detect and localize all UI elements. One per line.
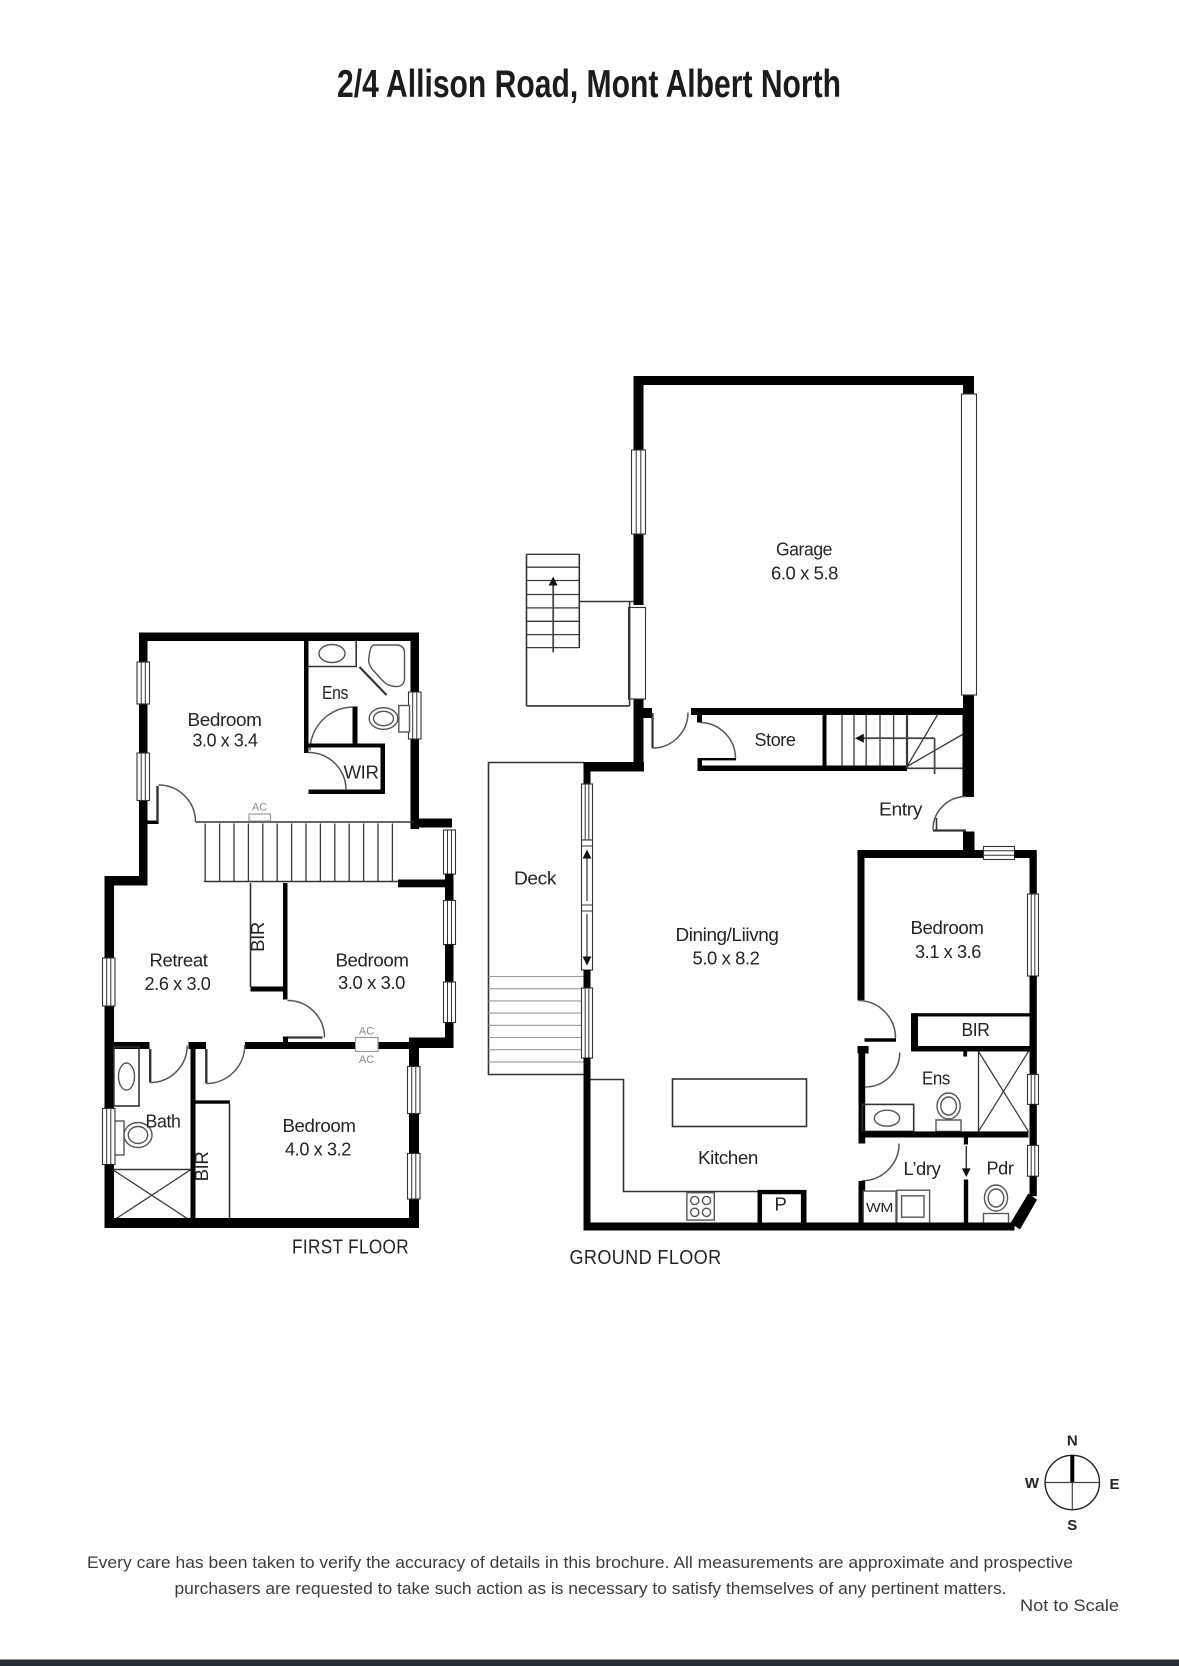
svg-text:AC: AC bbox=[252, 802, 267, 814]
svg-text:N: N bbox=[1067, 1433, 1078, 1450]
svg-text:Retreat: Retreat bbox=[150, 950, 208, 971]
svg-text:Bedroom: Bedroom bbox=[911, 917, 984, 938]
svg-text:Entry: Entry bbox=[879, 799, 923, 820]
svg-text:BIR: BIR bbox=[247, 922, 268, 952]
svg-text:Bedroom: Bedroom bbox=[336, 950, 409, 971]
svg-text:AC: AC bbox=[359, 1054, 374, 1066]
svg-text:E: E bbox=[1109, 1476, 1119, 1493]
svg-text:Every care has been taken to v: Every care has been taken to verify the … bbox=[87, 1554, 1073, 1572]
svg-text:Ens: Ens bbox=[922, 1068, 950, 1089]
svg-text:FIRST FLOOR: FIRST FLOOR bbox=[292, 1237, 409, 1259]
svg-text:Store: Store bbox=[755, 729, 796, 750]
svg-text:Ens: Ens bbox=[322, 682, 348, 703]
svg-text:L’dry: L’dry bbox=[904, 1158, 942, 1179]
svg-text:Kitchen: Kitchen bbox=[698, 1147, 758, 1168]
svg-text:3.0 x 3.4: 3.0 x 3.4 bbox=[193, 730, 258, 751]
svg-text:WIR: WIR bbox=[344, 762, 379, 783]
svg-text:2.6 x 3.0: 2.6 x 3.0 bbox=[145, 973, 211, 994]
svg-text:Bedroom: Bedroom bbox=[188, 709, 262, 730]
svg-text:3.1 x 3.6: 3.1 x 3.6 bbox=[915, 941, 981, 962]
svg-text:AC: AC bbox=[359, 1026, 374, 1038]
svg-text:Bedroom: Bedroom bbox=[283, 1115, 356, 1136]
svg-text:BIR: BIR bbox=[191, 1152, 212, 1182]
svg-text:P: P bbox=[775, 1194, 787, 1215]
svg-text:Pdr: Pdr bbox=[987, 1158, 1014, 1179]
svg-text:4.0 x 3.2: 4.0 x 3.2 bbox=[285, 1139, 351, 1160]
svg-text:2/4 Allison Road, Mont Albert: 2/4 Allison Road, Mont Albert North bbox=[337, 63, 841, 106]
svg-text:5.0 x 8.2: 5.0 x 8.2 bbox=[693, 948, 760, 969]
svg-text:Deck: Deck bbox=[514, 868, 557, 889]
svg-text:Garage: Garage bbox=[776, 539, 832, 560]
svg-text:Dining/Liivng: Dining/Liivng bbox=[676, 924, 779, 945]
svg-text:W: W bbox=[1025, 1475, 1040, 1492]
svg-text:Not to Scale: Not to Scale bbox=[1020, 1597, 1119, 1615]
svg-text:3.0 x 3.0: 3.0 x 3.0 bbox=[338, 972, 405, 993]
svg-text:S: S bbox=[1067, 1517, 1077, 1534]
svg-text:WM: WM bbox=[866, 1200, 893, 1215]
svg-text:6.0 x 5.8: 6.0 x 5.8 bbox=[771, 563, 838, 584]
svg-text:GROUND FLOOR: GROUND FLOOR bbox=[570, 1247, 722, 1269]
svg-text:Bath: Bath bbox=[146, 1111, 181, 1132]
svg-text:purchasers are requested to ta: purchasers are requested to take such ac… bbox=[175, 1580, 1007, 1598]
svg-text:BIR: BIR bbox=[962, 1019, 990, 1040]
